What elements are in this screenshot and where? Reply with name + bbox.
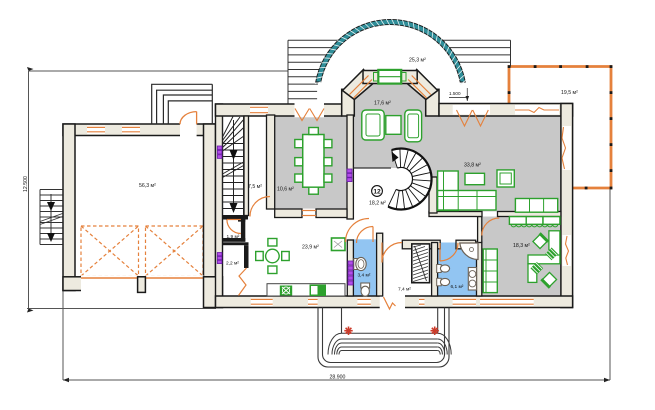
svg-text:17,6 м²: 17,6 м²: [374, 101, 391, 107]
svg-text:18,3 м²: 18,3 м²: [513, 243, 530, 249]
svg-text:56,3 м²: 56,3 м²: [139, 183, 156, 189]
svg-text:23,9 м²: 23,9 м²: [302, 245, 319, 251]
svg-text:25,3 м²: 25,3 м²: [409, 58, 426, 64]
svg-text:7,5 м²: 7,5 м²: [248, 184, 262, 190]
svg-text:12.500: 12.500: [23, 176, 29, 192]
svg-text:3,4 м²: 3,4 м²: [358, 273, 371, 279]
svg-text:2,2 м²: 2,2 м²: [226, 261, 239, 267]
svg-text:12: 12: [373, 189, 381, 196]
svg-text:10,6 м²: 10,6 м²: [277, 187, 294, 193]
svg-text:18,2 м²: 18,2 м²: [369, 201, 386, 207]
svg-text:1,9 м²: 1,9 м²: [227, 234, 240, 240]
svg-text:28.900: 28.900: [330, 374, 346, 380]
svg-text:33,8 м²: 33,8 м²: [464, 163, 481, 169]
svg-text:19,5 м²: 19,5 м²: [561, 90, 578, 96]
svg-text:7,4 м²: 7,4 м²: [398, 287, 411, 293]
svg-text:6,1 м²: 6,1 м²: [451, 284, 464, 290]
svg-text:1.500: 1.500: [449, 91, 461, 96]
